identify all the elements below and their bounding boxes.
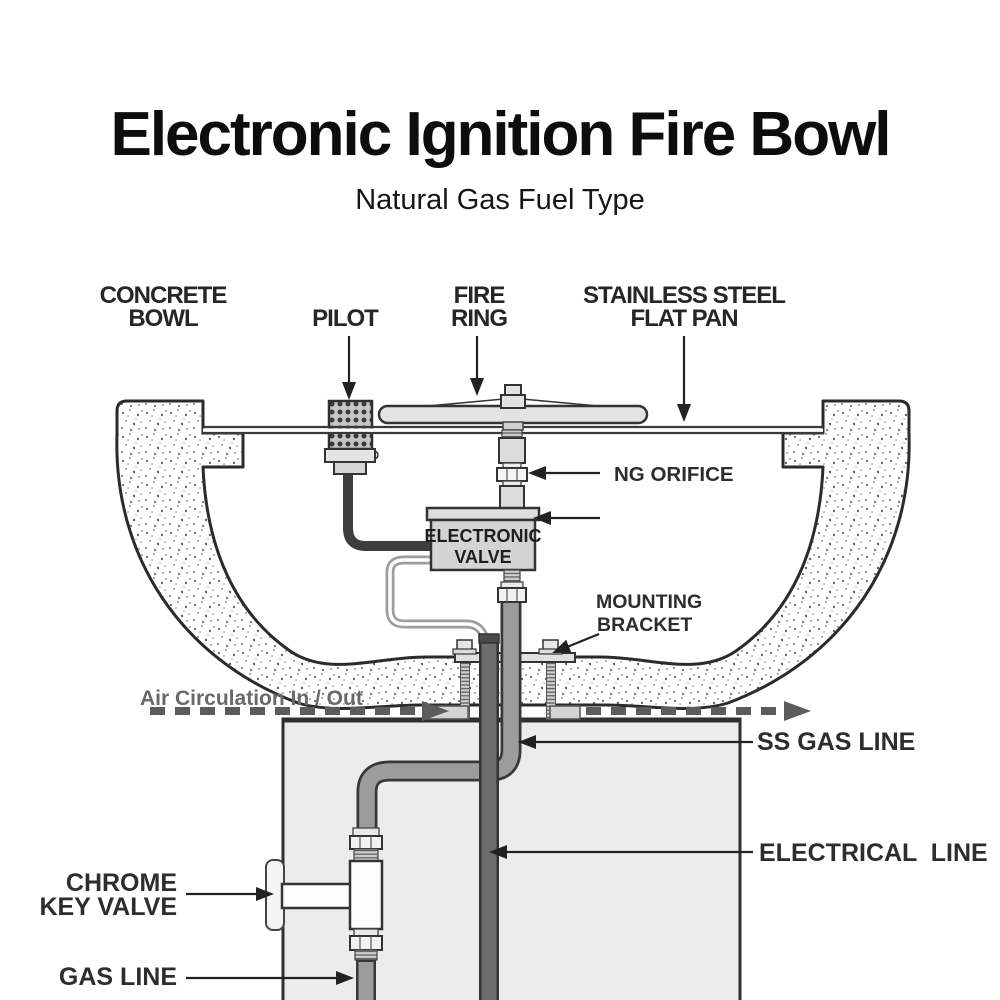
valve-wires [390,560,487,641]
pilot-collar [325,449,375,462]
ng-orifice-fitting [497,422,527,508]
pilot-base [334,462,366,474]
spacer-block-left [424,706,468,719]
label-air-circulation: Air Circulation In / Out [140,687,363,710]
fire-bowl-diagram: ELECTRONIC VALVE [0,0,1000,1000]
valve-label-line2: VALVE [454,547,511,567]
mounting-bracket-arrow [567,634,599,647]
label-chrome-key-valve-2: KEY VALVE [39,893,177,921]
valve-outlet-hex [498,588,526,602]
label-gas-line: GAS LINE [59,963,177,991]
label-ng-orifice: NG ORIFICE [614,463,734,486]
label-flat-pan-2: FLAT PAN [630,305,737,332]
key-valve-bottom-hex [350,936,382,950]
electrical-conduit [479,634,499,1000]
valve-label-line1: ELECTRONIC [425,526,542,546]
bracket-bolt-left-washer [453,649,476,654]
electronic-valve: ELECTRONIC VALVE [425,508,542,602]
spacer-block-right [550,706,580,719]
key-valve-stem [282,884,352,908]
label-mounting-bracket-1: MOUNTING [596,591,702,613]
key-valve-top-hex [350,836,382,849]
fire-ring [379,385,647,423]
label-electrical-line: ELECTRICAL LINE [759,839,988,867]
bracket-bolt-right-washer [539,649,562,654]
key-valve-body [350,861,382,929]
label-pilot: PILOT [312,305,379,332]
page: Electronic Ignition Fire Bowl Natural Ga… [0,0,1000,1000]
label-concrete-bowl-2: BOWL [128,305,198,332]
conduit-top-cap [479,634,499,643]
label-mounting-bracket-2: BRACKET [597,614,692,636]
label-ss-gas-line: SS GAS LINE [757,728,915,756]
pilot-cable [348,474,432,546]
valve-top-plate [427,508,539,520]
valve-outlet-thread [504,570,520,582]
pilot-burner [329,401,372,449]
fire-ring-hub [501,395,525,408]
label-fire-ring-2: RING [451,305,507,332]
ng-orifice-hex-nut [497,468,527,481]
